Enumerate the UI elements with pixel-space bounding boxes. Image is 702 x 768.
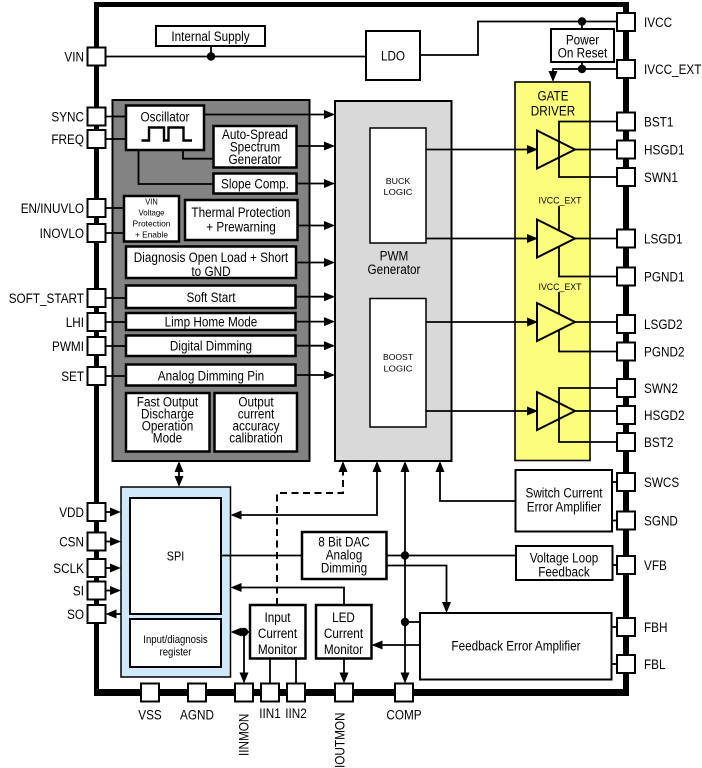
svg-text:Mode: Mode: [153, 431, 182, 446]
svg-text:BOOST: BOOST: [383, 352, 413, 362]
svg-text:INOVLO: INOVLO: [40, 226, 84, 241]
svg-text:Soft Start: Soft Start: [187, 290, 236, 305]
svg-text:IVCC: IVCC: [644, 15, 672, 30]
svg-text:Digital Dimming: Digital Dimming: [170, 339, 252, 354]
svg-text:SI: SI: [73, 583, 84, 598]
svg-text:IOUTMON: IOUTMON: [333, 713, 348, 768]
svg-text:Analog Dimming Pin: Analog Dimming Pin: [158, 368, 264, 383]
svg-text:IVCC_EXT: IVCC_EXT: [644, 62, 701, 77]
svg-text:+ Enable: + Enable: [135, 230, 168, 240]
svg-text:SWCS: SWCS: [644, 475, 679, 490]
svg-text:LOGIC: LOGIC: [384, 364, 413, 374]
svg-text:SOFT_START: SOFT_START: [9, 291, 84, 306]
svg-text:Protection: Protection: [133, 219, 171, 229]
svg-text:Oscillator: Oscillator: [141, 110, 190, 125]
svg-text:PGND2: PGND2: [644, 344, 685, 359]
svg-text:AGND: AGND: [180, 708, 214, 723]
svg-text:Dimming: Dimming: [321, 561, 367, 576]
svg-text:Switch Current: Switch Current: [526, 486, 603, 501]
svg-text:FBH: FBH: [644, 620, 668, 635]
svg-text:LSGD1: LSGD1: [644, 231, 683, 246]
svg-text:Feedback Error Amplifier: Feedback Error Amplifier: [451, 639, 581, 654]
svg-text:IINMON: IINMON: [237, 714, 252, 756]
svg-text:IIN1: IIN1: [259, 706, 281, 721]
svg-text:Voltage Loop: Voltage Loop: [530, 551, 599, 566]
svg-text:LOGIC: LOGIC: [384, 187, 413, 197]
svg-text:Diagnosis Open Load + Short: Diagnosis Open Load + Short: [134, 250, 289, 265]
svg-text:IIN2: IIN2: [285, 706, 307, 721]
svg-text:Input/diagnosis: Input/diagnosis: [143, 634, 208, 646]
svg-text:Generator: Generator: [368, 262, 421, 277]
svg-text:SCLK: SCLK: [53, 561, 84, 576]
svg-text:LED: LED: [332, 610, 355, 625]
svg-text:+ Prewarning: + Prewarning: [206, 220, 276, 235]
svg-text:BST2: BST2: [644, 435, 673, 450]
svg-text:FBL: FBL: [644, 657, 666, 672]
svg-text:calibration: calibration: [229, 431, 283, 446]
svg-text:CSN: CSN: [59, 534, 84, 549]
svg-text:BUCK: BUCK: [386, 176, 411, 186]
svg-text:DRIVER: DRIVER: [531, 104, 576, 119]
svg-text:to GND: to GND: [191, 264, 230, 279]
svg-text:Input: Input: [264, 610, 290, 625]
svg-text:VFB: VFB: [644, 558, 667, 573]
svg-text:Error Amplifier: Error Amplifier: [527, 500, 602, 515]
svg-text:VIN: VIN: [145, 197, 158, 207]
svg-text:Monitor: Monitor: [324, 642, 364, 657]
svg-text:BST1: BST1: [644, 114, 673, 129]
svg-text:Limp Home Mode: Limp Home Mode: [165, 314, 258, 329]
svg-text:VSS: VSS: [138, 708, 162, 723]
svg-text:VDD: VDD: [59, 505, 84, 520]
svg-text:IVCC_EXT: IVCC_EXT: [539, 282, 582, 292]
svg-text:LHI: LHI: [66, 315, 84, 330]
svg-text:Monitor: Monitor: [258, 642, 298, 657]
svg-text:Generator: Generator: [229, 152, 282, 167]
svg-text:Current: Current: [258, 626, 297, 641]
svg-text:IVCC_EXT: IVCC_EXT: [539, 196, 582, 206]
svg-text:SGND: SGND: [644, 513, 678, 528]
svg-text:HSGD1: HSGD1: [644, 142, 685, 157]
svg-text:FREQ: FREQ: [51, 132, 84, 147]
svg-text:COMP: COMP: [386, 708, 421, 723]
svg-text:LDO: LDO: [381, 49, 405, 64]
svg-text:VIN: VIN: [64, 49, 84, 64]
svg-text:On Reset: On Reset: [558, 46, 608, 61]
svg-text:LSGD2: LSGD2: [644, 317, 683, 332]
svg-text:EN/INUVLO: EN/INUVLO: [21, 201, 84, 216]
svg-text:PGND1: PGND1: [644, 269, 685, 284]
svg-text:Current: Current: [324, 626, 363, 641]
svg-text:SPI: SPI: [167, 550, 185, 564]
svg-text:Internal Supply: Internal Supply: [171, 29, 250, 44]
svg-text:Feedback: Feedback: [538, 565, 590, 580]
svg-text:SO: SO: [67, 607, 84, 622]
svg-text:Thermal Protection: Thermal Protection: [191, 205, 290, 220]
svg-text:SWN1: SWN1: [644, 170, 678, 185]
svg-text:HSGD2: HSGD2: [644, 408, 685, 423]
svg-text:GATE: GATE: [537, 89, 568, 104]
svg-text:SET: SET: [61, 369, 84, 384]
svg-text:SYNC: SYNC: [51, 109, 84, 124]
svg-text:SWN2: SWN2: [644, 381, 678, 396]
svg-text:Voltage: Voltage: [139, 208, 165, 218]
svg-text:register: register: [160, 647, 192, 659]
svg-text:PWMI: PWMI: [52, 339, 84, 354]
svg-text:Slope Comp.: Slope Comp.: [221, 177, 289, 192]
